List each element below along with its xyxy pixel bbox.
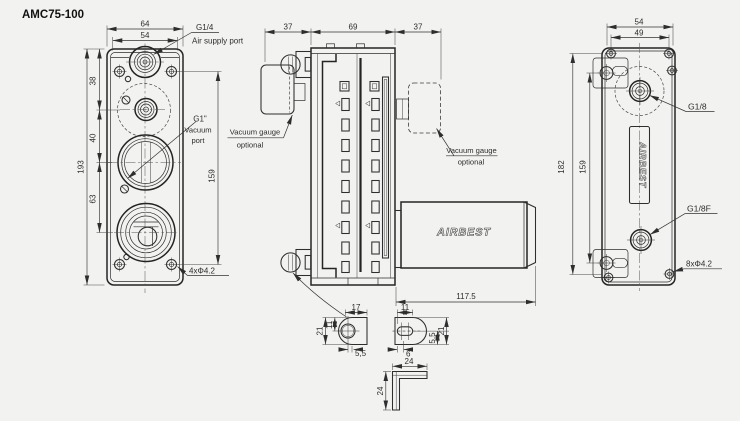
- dim-rear-159: 159: [578, 160, 587, 174]
- dim-bracketa-17: 17: [352, 303, 361, 312]
- dim-front-193: 193: [77, 160, 86, 174]
- label-air-port: Air supply port: [192, 37, 244, 46]
- gauge-left-line1: Vacuum gauge: [230, 128, 281, 137]
- gauge-label-right: Vacuum gauge optional: [437, 129, 498, 167]
- side-body-profile: [323, 54, 337, 278]
- dim-rear-54: 54: [635, 18, 644, 27]
- drawing-canvas: AMC75-100: [0, 0, 740, 421]
- detail-leader: [293, 273, 347, 317]
- dim-side-37-left: 37: [284, 23, 293, 32]
- label-rear-holes: 8xΦ4.2: [686, 260, 713, 269]
- label-port-g18f: G1/8F: [687, 204, 711, 214]
- locating-pin: [125, 76, 130, 81]
- label-air-thread: G1/4: [196, 23, 214, 32]
- dim-side-37-right: 37: [414, 23, 423, 32]
- dim-bracketa-11: 11: [325, 320, 334, 329]
- rear-brand-text: AIRBEST: [637, 141, 648, 188]
- gauge-left-line2: optional: [237, 141, 264, 150]
- air-supply-port: [126, 47, 164, 78]
- label-vac-thread: G1": [193, 115, 207, 124]
- silencer: AIRBEST: [395, 202, 536, 268]
- dim-117-5: 117.5: [456, 292, 476, 301]
- gauge-right-line1: Vacuum gauge: [446, 146, 497, 155]
- bracket-detail-b: 11 6 5,5 21: [390, 303, 449, 359]
- dim-side-69: 69: [349, 23, 358, 32]
- dim-rear-182: 182: [557, 160, 566, 174]
- dim-bracketa-21: 21: [316, 326, 325, 335]
- gauge-label-left: Vacuum gauge optional: [228, 115, 293, 150]
- side-top-dimensions: 37 69 37: [265, 23, 441, 80]
- dim-bracketb-55: 5,5: [428, 332, 437, 344]
- side-view: 37 69 37: [228, 23, 536, 318]
- silencer-length-dimension: 117.5: [396, 266, 536, 306]
- dim-front-40: 40: [89, 133, 98, 142]
- vacuum-gauge-left: [261, 65, 305, 114]
- label-vac-word2: port: [191, 136, 205, 145]
- dim-bracketb-11: 11: [401, 303, 410, 312]
- dim-front-54: 54: [141, 31, 150, 40]
- dim-front-159: 159: [208, 169, 217, 183]
- rear-view: 54 49: [557, 18, 722, 292]
- vacuum-gauge-right: [397, 83, 441, 133]
- label-front-holes: 4xΦ4.2: [189, 267, 216, 276]
- port-g18: [626, 77, 654, 105]
- port-g18f: [627, 226, 655, 254]
- dim-bracketa-55: 5,5: [355, 349, 367, 358]
- dim-bracketb-21: 21: [437, 326, 446, 335]
- vacuum-port-top: [118, 84, 171, 137]
- bracket-detail-a: 17 21 11 5,5: [316, 303, 368, 358]
- page-title: AMC75-100: [22, 9, 84, 21]
- vent-slots: [336, 77, 389, 273]
- label-port-g18: G1/8: [688, 102, 707, 112]
- dim-front-64: 64: [141, 20, 150, 29]
- dim-front-38: 38: [89, 76, 98, 85]
- dim-front-63: 63: [89, 194, 98, 203]
- silencer-brand-text: AIRBEST: [436, 227, 491, 239]
- angle-bracket-detail: 24 24: [376, 357, 427, 410]
- ejector-port: [114, 204, 178, 262]
- dim-angle-h24: 24: [376, 386, 385, 395]
- mounting-clamp-bottom: [281, 250, 311, 276]
- front-view: 64 54 193 38 40 63 159 4xΦ4.2 G1/4 Air s…: [77, 20, 244, 294]
- dim-rear-49: 49: [635, 29, 644, 38]
- technical-drawing-page: AMC75-100: [0, 0, 740, 421]
- gauge-right-line2: optional: [458, 158, 485, 167]
- label-vac-word1: Vacuum: [184, 126, 211, 135]
- dim-angle-w24: 24: [405, 357, 414, 366]
